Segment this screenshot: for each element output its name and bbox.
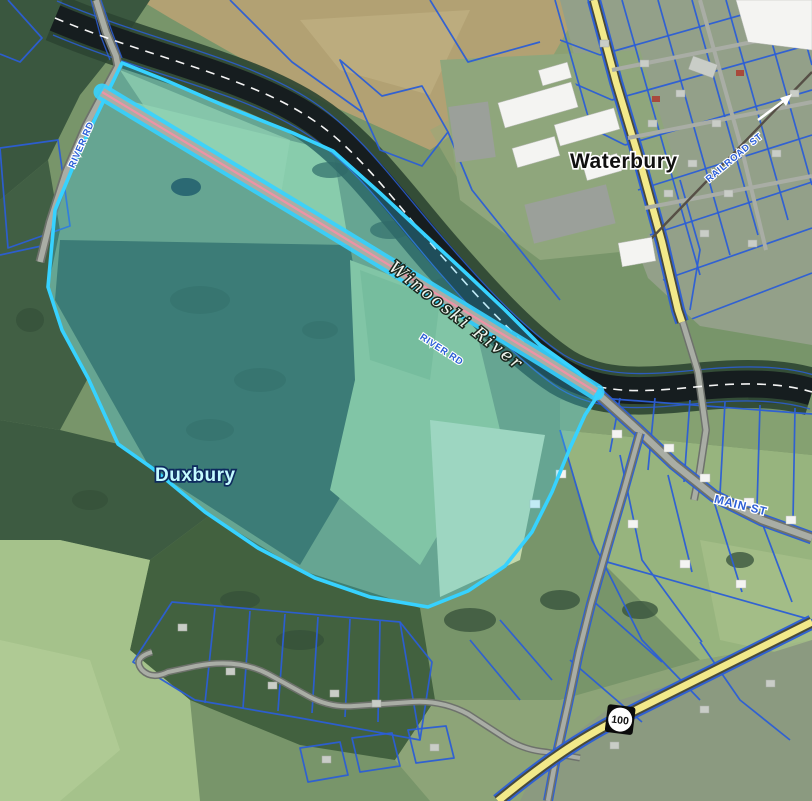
label-duxbury: Duxbury — [155, 465, 236, 486]
route-100-shield-icon: 100 — [605, 704, 636, 735]
label-waterbury: Waterbury — [570, 150, 678, 173]
svg-text:100: 100 — [611, 714, 630, 728]
map-canvas[interactable]: 100 Waterbury Duxbury Winooski River MAI… — [0, 0, 812, 801]
map-viewport[interactable]: 100 Waterbury Duxbury Winooski River MAI… — [0, 0, 812, 801]
